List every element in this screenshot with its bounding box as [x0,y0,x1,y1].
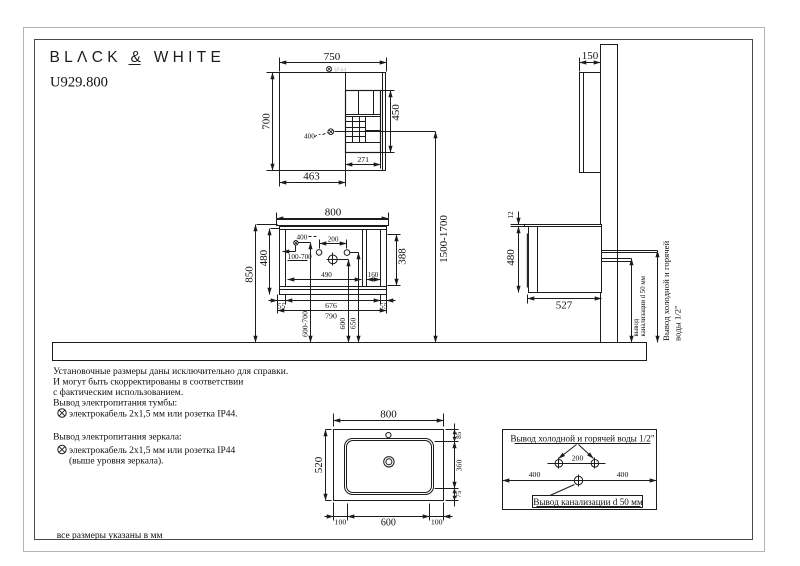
svg-text:800: 800 [325,207,342,219]
svg-text:750: 750 [324,51,341,63]
svg-text:790: 790 [325,312,337,321]
svg-text:(выше уровня зеркала).: (выше уровня зеркала). [69,456,164,467]
svg-text:85: 85 [455,431,463,439]
svg-text:650: 650 [348,317,357,329]
svg-text:388: 388 [396,248,408,265]
svg-text:463: 463 [303,171,320,183]
svg-text:490: 490 [321,271,332,279]
svg-text:Вывод электропитания тумбы:: Вывод электропитания тумбы: [53,398,177,409]
svg-text:100-700: 100-700 [288,253,312,261]
svg-text:527: 527 [556,300,573,312]
svg-text:Установочные размеры даны искл: Установочные размеры даны исключительно … [53,367,288,377]
svg-text:450: 450 [390,104,402,121]
svg-text:электрокабель 2х1,5 мм или роз: электрокабель 2х1,5 мм или розетка IP44 [69,445,235,456]
svg-text:480: 480 [505,249,517,266]
svg-text:360: 360 [455,460,464,472]
svg-text:520: 520 [313,456,325,473]
svg-text:160: 160 [368,271,379,279]
svg-text:800: 800 [380,409,397,421]
svg-text:75: 75 [455,490,463,498]
svg-text:U929.800: U929.800 [50,75,108,91]
svg-text:200: 200 [328,235,339,243]
svg-text:100: 100 [335,518,347,527]
svg-text:электрокабель 2х1,5 мм или роз: электрокабель 2х1,5 мм или розетка IP44. [69,409,238,420]
svg-text:400: 400 [304,133,315,141]
svg-text:200: 200 [572,454,584,463]
svg-text:271: 271 [357,155,369,164]
svg-text:400: 400 [297,234,308,242]
svg-text:150: 150 [582,50,599,62]
svg-text:Вывод холодной и горячей: Вывод холодной и горячей [661,240,671,341]
svg-text:Вывод электропитания зеркала:: Вывод электропитания зеркала: [53,433,182,443]
svg-text:700: 700 [260,113,272,130]
svg-text:400: 400 [529,470,541,479]
svg-text:55: 55 [380,302,388,311]
svg-text:600-700: 600-700 [300,311,309,337]
svg-text:воды 1/2": воды 1/2" [673,305,683,341]
svg-text:676: 676 [325,301,337,310]
svg-text:И могут быть скорректированы в: И могут быть скорректированы в соответст… [53,377,243,388]
svg-text:480: 480 [258,249,270,266]
svg-text:55: 55 [278,302,286,311]
svg-text:100: 100 [431,518,443,527]
svg-text:канализации d 50 мм: канализации d 50 мм [640,275,647,336]
svg-text:850: 850 [244,266,256,283]
svg-text:все размеры указаны в мм: все размеры указаны в мм [57,531,163,541]
svg-text:BLΛCK & WHITE: BLΛCK & WHITE [50,49,226,66]
svg-text:Вывод холодной и горячей воды: Вывод холодной и горячей воды 1/2" [510,434,654,444]
svg-text:Вывод канализации d 50 мм: Вывод канализации d 50 мм [533,497,643,507]
svg-text:12: 12 [507,211,515,219]
svg-text:с фактическим использованием.: с фактическим использованием. [53,387,183,398]
svg-text:400: 400 [617,470,629,479]
svg-text:1500-1700: 1500-1700 [438,215,450,263]
svg-text:600: 600 [381,517,396,528]
svg-text:вывод: вывод [633,318,640,336]
svg-text:600: 600 [338,318,347,330]
